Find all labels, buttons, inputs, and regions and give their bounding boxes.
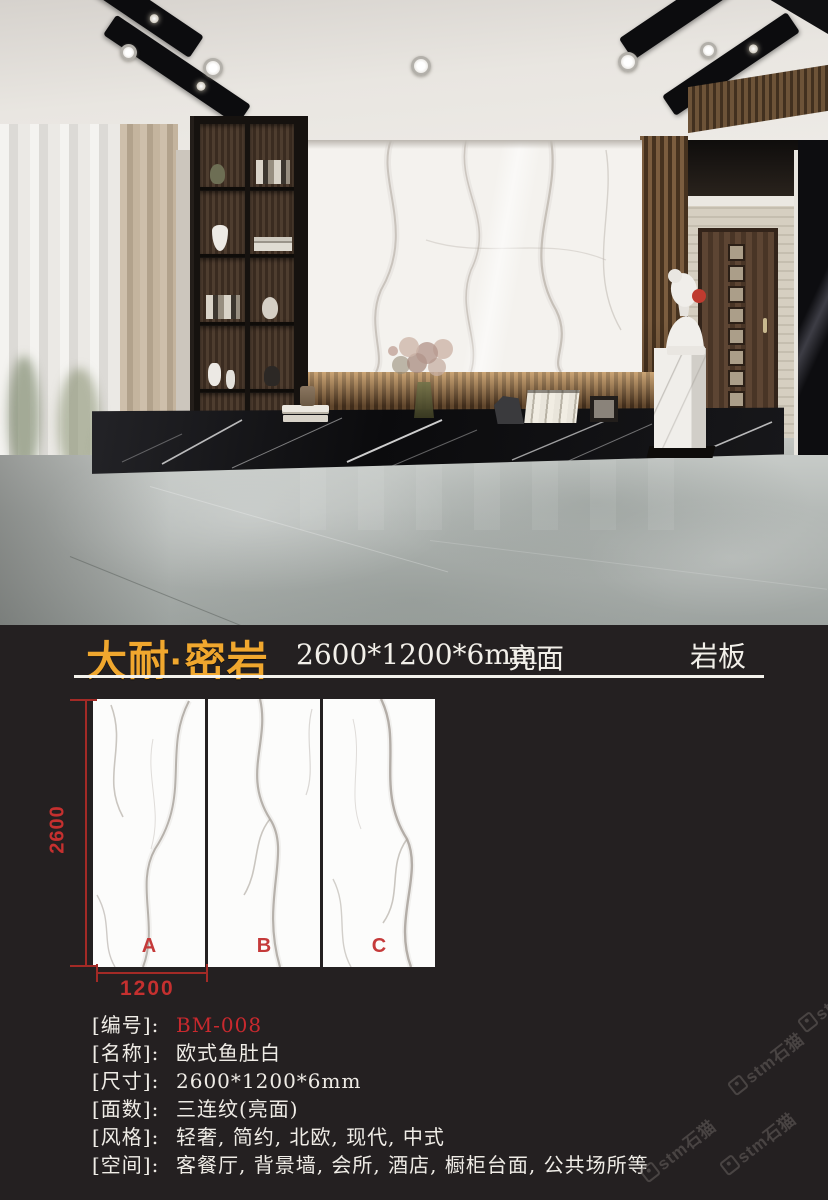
panel-label: A <box>93 935 205 958</box>
sample-panel-c: C <box>323 699 435 967</box>
spec-value: 三连纹(亮面) <box>176 1099 299 1120</box>
sample-panel-b: B <box>208 699 320 967</box>
downlight-icon <box>411 56 431 76</box>
dimension-line-vertical <box>85 700 87 966</box>
watermark: stm石猫 <box>724 1025 809 1099</box>
spec-value: 欧式鱼肚白 <box>176 1043 281 1064</box>
decor-vases <box>208 363 221 386</box>
watermark: stm石猫 <box>716 1105 801 1179</box>
decor-books <box>256 160 290 184</box>
spec-label: [面数]: <box>92 1099 176 1120</box>
spec-row-code: [编号]: BM-008 <box>92 1015 649 1036</box>
photo-frame <box>590 396 618 422</box>
spec-row-style: [风格]: 轻奢, 简约, 北欧, 现代, 中式 <box>92 1127 649 1148</box>
decor-books <box>206 295 240 319</box>
spec-label: [尺寸]: <box>92 1071 176 1092</box>
dimension-tick <box>206 964 208 982</box>
decor-sculpture <box>264 366 280 386</box>
spotlight-icon <box>195 80 207 92</box>
showroom-photo <box>0 0 828 625</box>
panel-label: C <box>323 935 435 958</box>
sample-panels: A B C <box>93 699 435 967</box>
watermark-text: stm石猫 <box>739 1025 809 1087</box>
marble-pedestal <box>654 348 706 448</box>
decor-books <box>254 241 292 251</box>
spec-label: [风格]: <box>92 1127 176 1148</box>
door-window-column <box>728 244 745 429</box>
spec-value: BM-008 <box>176 1015 262 1036</box>
dimension-tick <box>70 965 97 967</box>
dried-flowers <box>388 346 398 356</box>
mirror-panel <box>798 140 828 470</box>
spec-label: [名称]: <box>92 1043 176 1064</box>
spec-row-space: [空间]: 客餐厅, 背景墙, 会所, 酒店, 橱柜台面, 公共场所等 <box>92 1155 649 1176</box>
decor-plant <box>210 164 225 184</box>
header-size: 2600*1200*6mm <box>296 638 537 671</box>
panel-label: B <box>208 935 320 958</box>
spec-label: [空间]: <box>92 1155 176 1176</box>
door-handle <box>763 318 767 333</box>
width-dimension-label: 1200 <box>120 977 175 1001</box>
decor-ornament <box>262 297 278 319</box>
wall-reflection <box>306 140 642 372</box>
product-info-section: 大耐·密岩 2600*1200*6mm 亮面 岩板 A <box>0 625 828 1200</box>
watermark-text: stm石猫 <box>731 1105 801 1167</box>
downlight-icon <box>203 58 223 78</box>
spotlight-icon <box>747 43 759 55</box>
header-category: 岩板 <box>690 635 746 675</box>
spec-row-size: [尺寸]: 2600*1200*6mm <box>92 1071 649 1092</box>
height-dimension-label: 2600 <box>47 798 70 862</box>
wall-top-shadow <box>306 140 642 149</box>
bench-ornament <box>300 386 315 406</box>
floor-reflection <box>300 458 700 530</box>
dimension-line-horizontal <box>96 972 208 974</box>
spec-row-name: [名称]: 欧式鱼肚白 <box>92 1043 649 1064</box>
spotlight-icon <box>148 13 160 25</box>
bust-sculpture <box>658 268 714 360</box>
header-finish: 亮面 <box>508 637 564 677</box>
product-poster: 大耐·密岩 2600*1200*6mm 亮面 岩板 A <box>0 0 828 1200</box>
cabinet-column <box>200 124 245 456</box>
dimension-tick <box>70 699 97 701</box>
watermark: stm石猫 <box>794 962 828 1036</box>
bench-books <box>282 405 329 414</box>
brand-title: 大耐·密岩 <box>86 627 269 687</box>
dimension-tick <box>96 964 98 982</box>
spec-label: [编号]: <box>92 1015 176 1036</box>
downlight-icon <box>120 44 137 61</box>
bench-book-row <box>524 390 579 423</box>
downlight-icon <box>618 52 638 72</box>
sample-panel-a: A <box>93 699 205 967</box>
floor-shadow <box>0 455 170 625</box>
watermark-text: stm石猫 <box>651 1112 721 1174</box>
title-underline <box>74 675 764 678</box>
spec-row-faces: [面数]: 三连纹(亮面) <box>92 1099 649 1120</box>
spec-value: 客餐厅, 背景墙, 会所, 酒店, 橱柜台面, 公共场所等 <box>176 1155 649 1176</box>
spec-value: 2600*1200*6mm <box>176 1071 361 1092</box>
red-ball <box>692 289 706 303</box>
spec-value: 轻奢, 简约, 北欧, 现代, 中式 <box>176 1127 445 1148</box>
decor-vase <box>212 225 228 251</box>
marble-feature-wall <box>306 140 642 372</box>
spec-list: [编号]: BM-008 [名称]: 欧式鱼肚白 [尺寸]: 2600*1200… <box>92 1015 649 1176</box>
downlight-icon <box>700 42 717 59</box>
